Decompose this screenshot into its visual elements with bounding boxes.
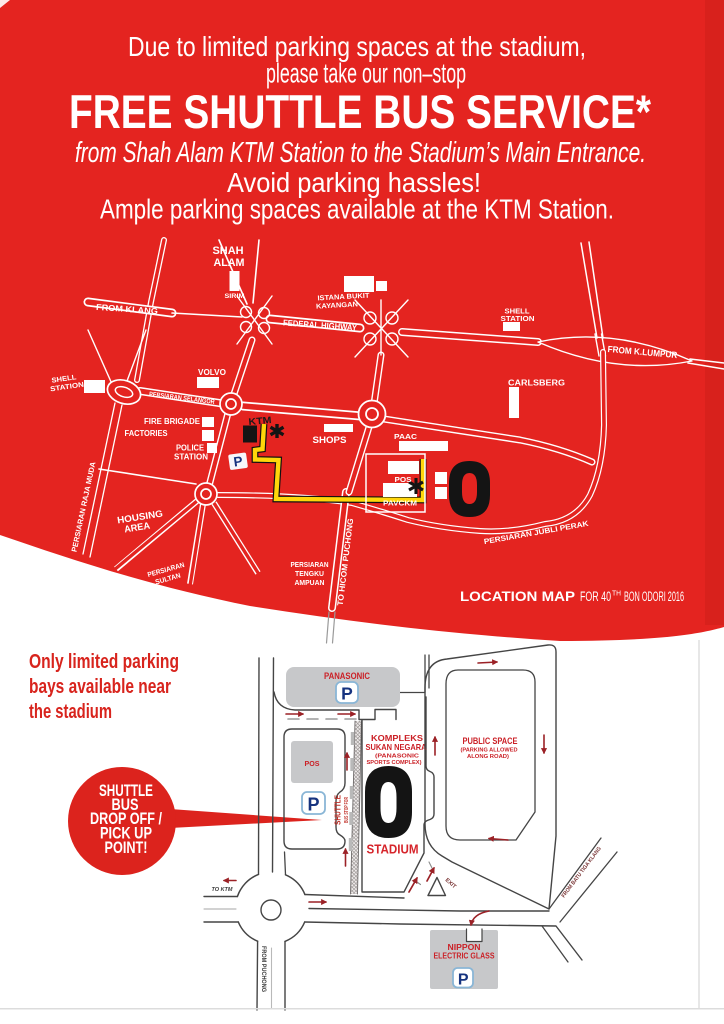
svg-text:SPORTS COMPLEX): SPORTS COMPLEX) [367,760,422,766]
svg-text:ELECTRIC GLASS: ELECTRIC GLASS [434,952,496,961]
svg-text:TO KTM: TO KTM [212,887,233,893]
svg-text:VOLVO: VOLVO [198,368,226,377]
svg-text:PANASONIC: PANASONIC [324,671,370,681]
svg-text:bays available near: bays available near [29,676,171,698]
svg-text:BON ODORI 2016: BON ODORI 2016 [624,589,684,604]
svg-text:PAAC: PAAC [394,432,418,441]
svg-text:POS: POS [395,475,412,484]
svg-text:SHOPS: SHOPS [313,435,347,445]
svg-text:POLICE: POLICE [176,444,205,453]
svg-text:(PANASONIC: (PANASONIC [375,754,419,760]
svg-text:AMPUAN: AMPUAN [295,580,325,587]
svg-text:FACTORIES: FACTORIES [125,429,169,438]
svg-text:FREE SHUTTLE BUS SERVICE*: FREE SHUTTLE BUS SERVICE* [69,85,652,138]
svg-text:CARLSBERG: CARLSBERG [508,379,565,388]
svg-text:from Shah Alam KTM Station to: from Shah Alam KTM Station to the Stadiu… [75,137,646,169]
svg-text:FROM PUCHONG: FROM PUCHONG [260,946,266,992]
svg-text:FOR 40: FOR 40 [580,589,611,604]
svg-text:STADIUM: STADIUM [367,842,419,857]
svg-text:SHAH: SHAH [213,245,244,257]
svg-text:SIRIM: SIRIM [225,293,245,300]
svg-text:P: P [307,795,319,815]
svg-text:SHUTTLE: SHUTTLE [334,794,343,825]
svg-text:ALONG ROAD): ALONG ROAD) [467,754,509,760]
svg-text:the stadium: the stadium [29,701,112,723]
svg-text:(PARKING ALLOWED: (PARKING ALLOWED [461,748,518,754]
svg-text:PAVCKM: PAVCKM [383,499,417,508]
svg-text:PUBLIC SPACE: PUBLIC SPACE [463,736,518,746]
svg-text:STATION: STATION [501,316,535,323]
svg-text:please take our non–stop: please take our non–stop [266,58,466,89]
svg-text:BUS STOP FOR: BUS STOP FOR [344,797,350,823]
svg-text:KTM: KTM [248,415,272,428]
svg-text:ALAM: ALAM [214,257,245,269]
svg-text:Only limited parking: Only limited parking [29,651,179,673]
svg-text:PERSIARAN: PERSIARAN [291,562,329,569]
svg-text:SHELL: SHELL [505,309,531,316]
svg-text:Ample parking spaces available: Ample parking spaces available at the KT… [100,194,614,225]
svg-text:LOCATION MAP: LOCATION MAP [460,589,575,604]
svg-text:STATION: STATION [174,453,208,462]
svg-text:TH: TH [612,589,621,598]
svg-text:TENGKU: TENGKU [295,571,324,578]
svg-text:SUKAN NEGARA: SUKAN NEGARA [366,742,427,752]
svg-text:P: P [341,684,353,704]
svg-text:POINT!: POINT! [105,839,148,857]
svg-text:POS: POS [305,759,320,768]
svg-text:P: P [458,972,469,989]
svg-text:FIRE BRIGADE: FIRE BRIGADE [144,417,201,426]
